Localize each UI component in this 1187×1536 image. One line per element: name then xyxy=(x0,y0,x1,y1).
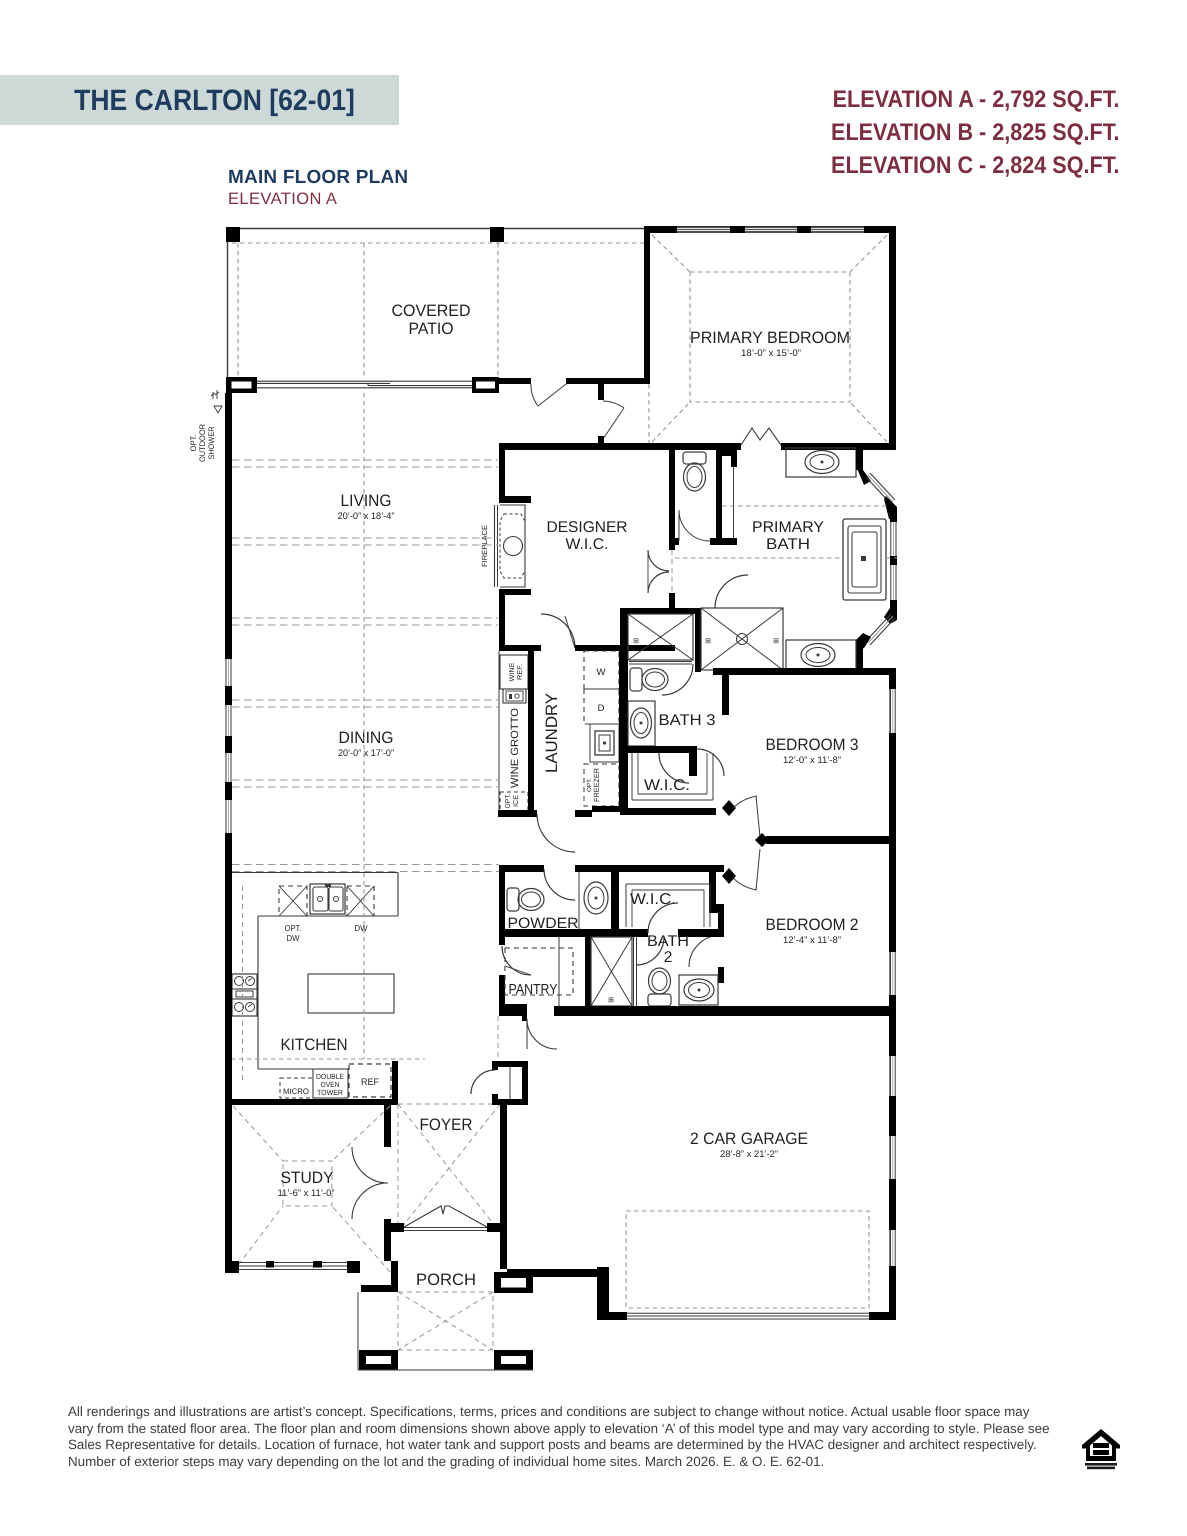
svg-text:LAUNDRY: LAUNDRY xyxy=(543,693,561,773)
svg-text:W: W xyxy=(597,667,606,678)
svg-text:LIVING: LIVING xyxy=(341,492,392,510)
svg-text:⊞: ⊞ xyxy=(608,997,614,1004)
svg-text:WINE: WINE xyxy=(509,662,516,681)
svg-text:DW: DW xyxy=(355,923,368,933)
svg-text:BATH 3: BATH 3 xyxy=(659,712,716,729)
svg-text:TOWER: TOWER xyxy=(317,1088,344,1097)
svg-text:12’-0” x 11’-8”: 12’-0” x 11’-8” xyxy=(783,755,841,766)
svg-text:WINE GROTTO: WINE GROTTO xyxy=(509,708,521,788)
svg-text:PORCH: PORCH xyxy=(416,1271,476,1289)
svg-text:W.I.C.: W.I.C. xyxy=(630,891,676,908)
svg-text:BEDROOM 2: BEDROOM 2 xyxy=(766,916,859,934)
svg-text:20’-0” x 18’-4”: 20’-0” x 18’-4” xyxy=(338,511,395,522)
svg-text:OPT.: OPT. xyxy=(285,923,302,933)
svg-text:20’-0” x 17’-0”: 20’-0” x 17’-0” xyxy=(338,748,394,759)
svg-text:PATIO: PATIO xyxy=(409,320,454,338)
svg-text:2 CAR GARAGE: 2 CAR GARAGE xyxy=(690,1130,808,1148)
svg-text:OPT.: OPT. xyxy=(189,435,198,452)
svg-text:COVERED: COVERED xyxy=(392,302,471,320)
svg-text:KITCHEN: KITCHEN xyxy=(281,1036,348,1054)
svg-text:OUTDOOR: OUTDOOR xyxy=(198,424,207,462)
svg-text:FOYER: FOYER xyxy=(420,1116,473,1134)
svg-text:⊞: ⊞ xyxy=(633,638,639,645)
svg-text:REF.: REF. xyxy=(517,664,524,680)
svg-text:MICRO: MICRO xyxy=(283,1087,309,1096)
svg-text:DW: DW xyxy=(287,933,300,943)
svg-text:PRIMARY BEDROOM: PRIMARY BEDROOM xyxy=(690,329,850,347)
svg-text:OPT.: OPT. xyxy=(586,778,593,792)
svg-text:REF: REF xyxy=(361,1077,379,1088)
svg-text:2: 2 xyxy=(664,949,673,966)
svg-text:BATH: BATH xyxy=(766,536,810,553)
svg-text:SHOWER: SHOWER xyxy=(207,426,216,459)
svg-text:D: D xyxy=(598,703,605,714)
svg-text:28’-8” x 21’-2”: 28’-8” x 21’-2” xyxy=(720,1149,778,1160)
svg-text:OPT.: OPT. xyxy=(505,793,512,808)
svg-text:FIREPLACE: FIREPLACE xyxy=(480,525,489,567)
svg-text:PRIMARY: PRIMARY xyxy=(752,519,824,536)
svg-text:11’-6” x 11’-0”: 11’-6” x 11’-0” xyxy=(278,1188,335,1199)
svg-text:12’-4” x 11’-8”: 12’-4” x 11’-8” xyxy=(783,935,841,946)
svg-text:DESIGNER: DESIGNER xyxy=(547,519,628,536)
svg-text:PANTRY: PANTRY xyxy=(509,982,558,998)
svg-text:⊞: ⊞ xyxy=(705,638,711,645)
svg-text:STUDY: STUDY xyxy=(281,1169,334,1187)
svg-text:BEDROOM 3: BEDROOM 3 xyxy=(766,736,859,754)
svg-text:18’-0” x 15’-0”: 18’-0” x 15’-0” xyxy=(741,348,801,359)
svg-text:ICE: ICE xyxy=(513,795,520,807)
svg-text:⊞: ⊞ xyxy=(773,638,779,645)
svg-text:FREEZER: FREEZER xyxy=(592,767,601,802)
svg-text:BATH: BATH xyxy=(647,933,689,950)
svg-text:W.I.C.: W.I.C. xyxy=(644,777,690,794)
svg-text:DINING: DINING xyxy=(339,729,394,747)
svg-text:W.I.C.: W.I.C. xyxy=(566,536,609,553)
